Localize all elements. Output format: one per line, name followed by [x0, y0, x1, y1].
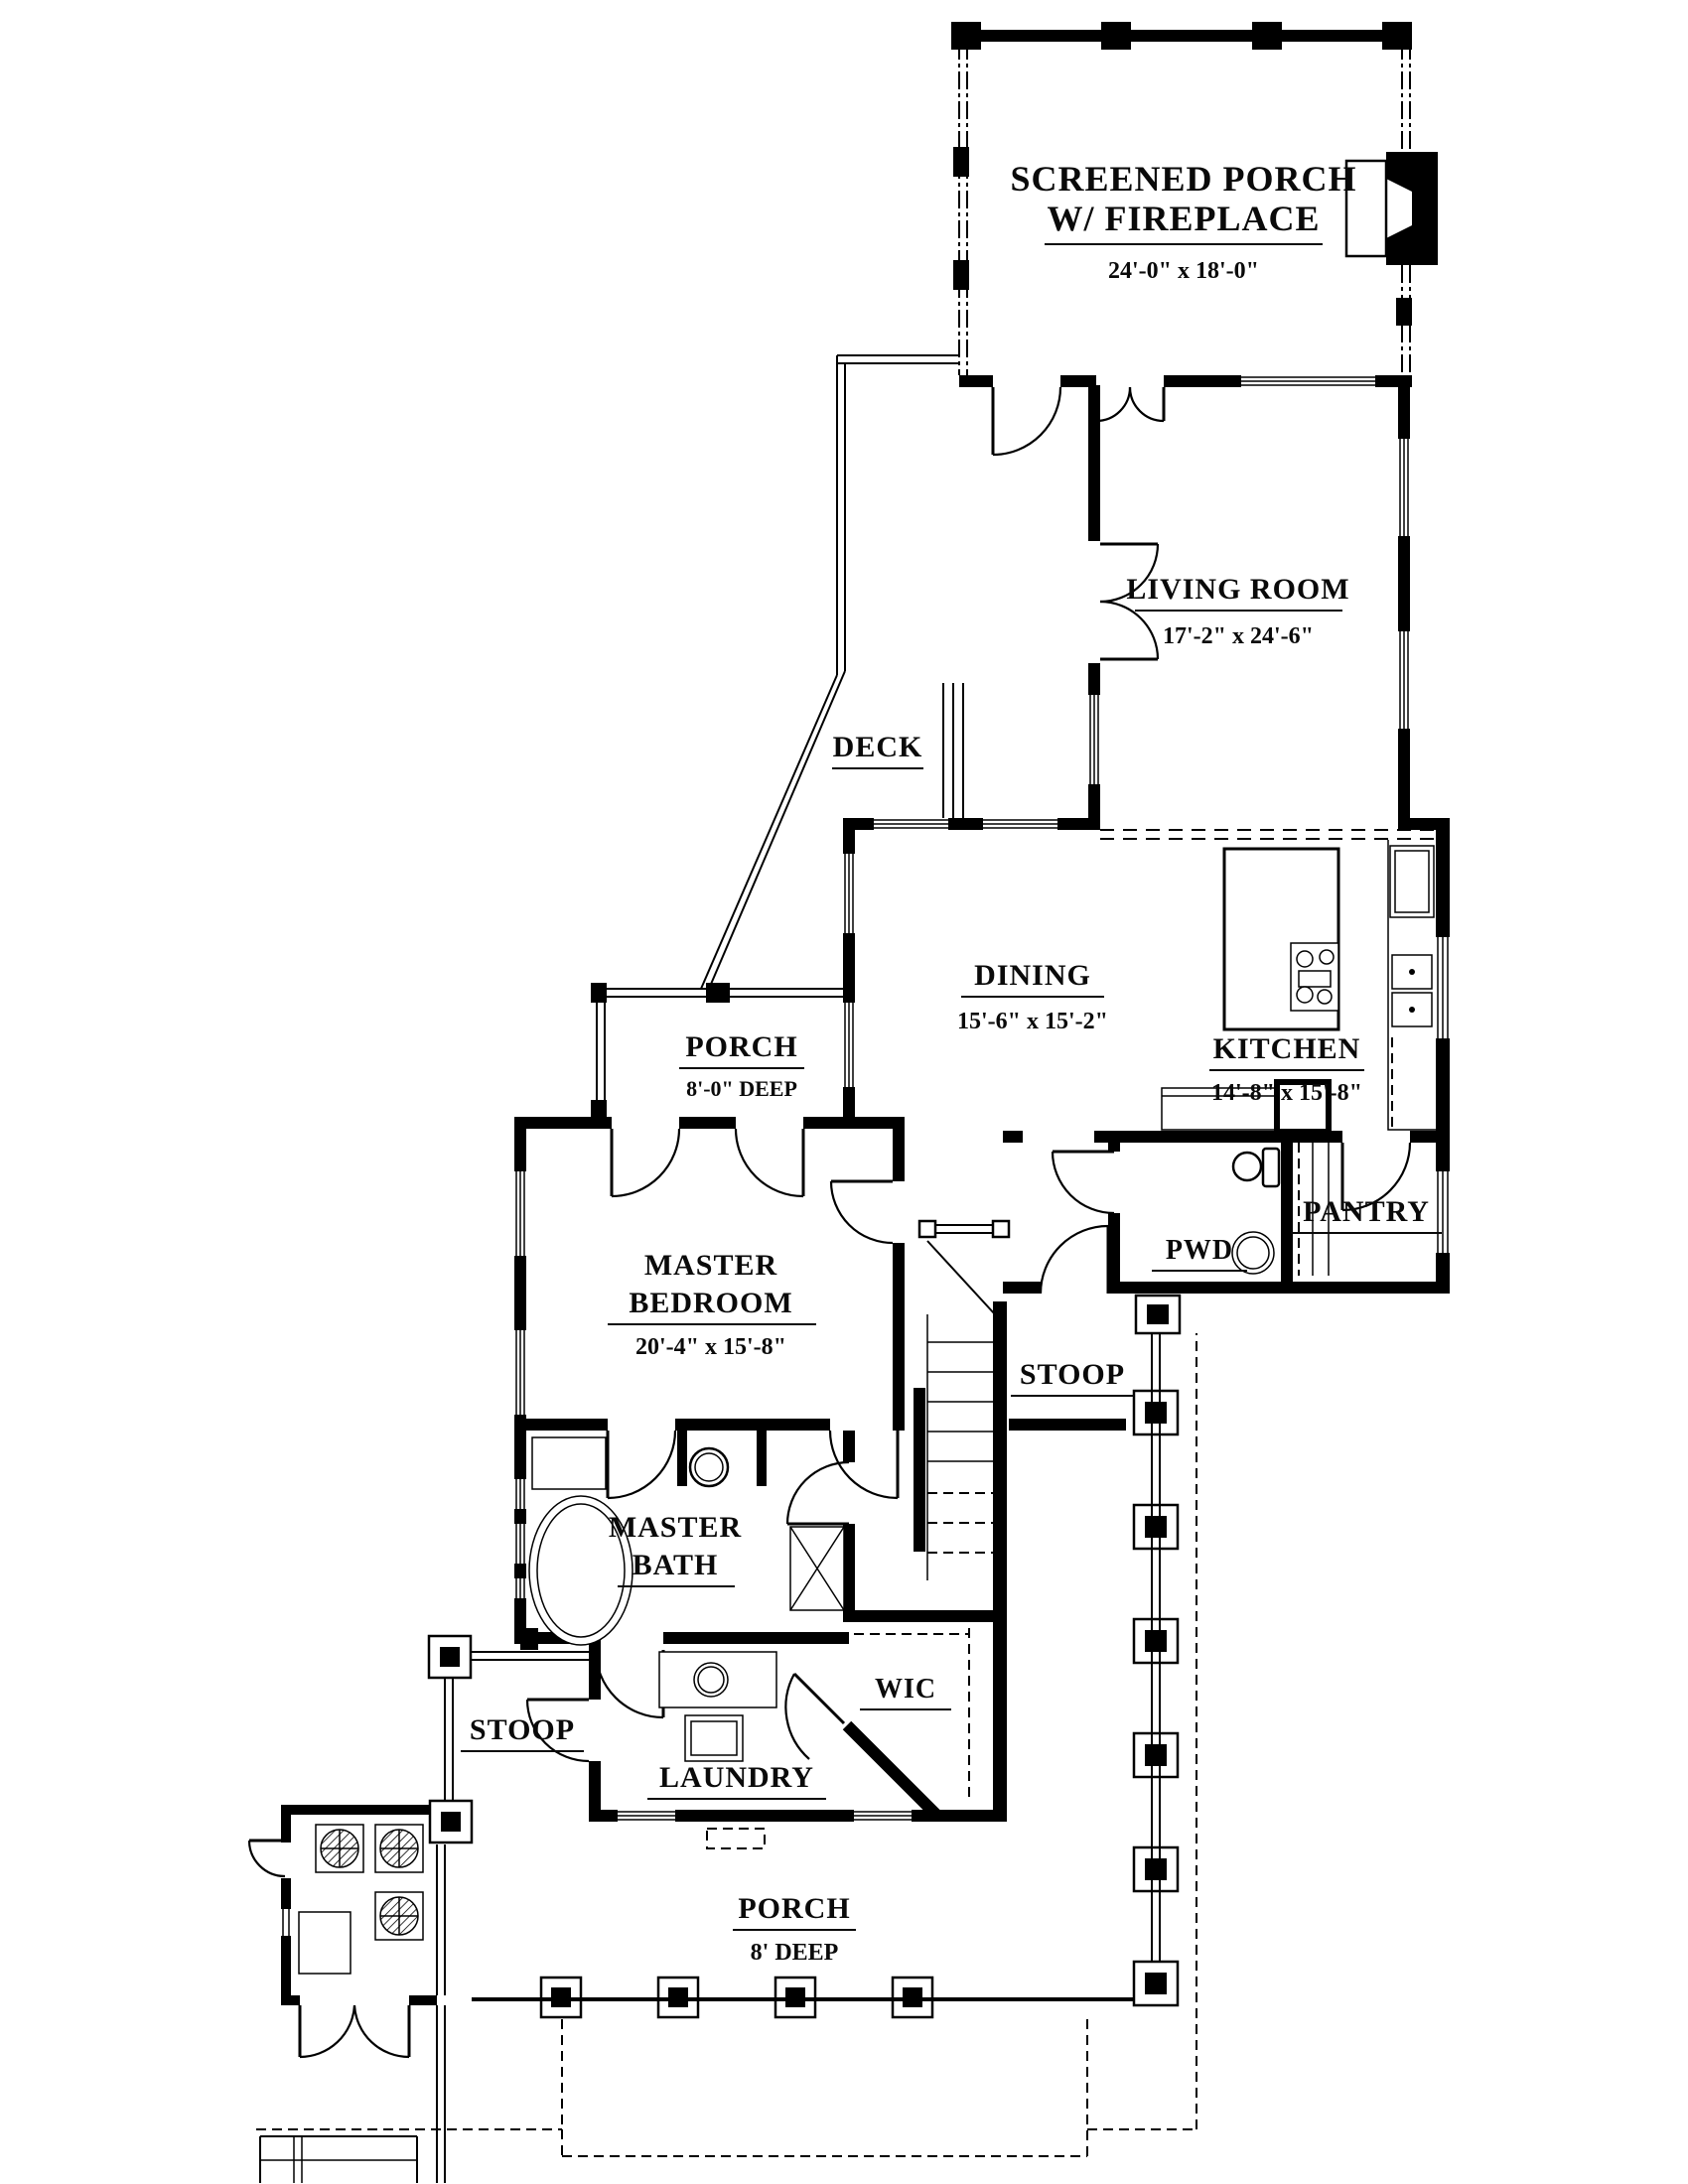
label-dining: DINING 15'-6" x 15'-2" [957, 959, 1108, 1034]
room-name: BATH [633, 1549, 719, 1581]
window-living-east-1 [1400, 439, 1408, 536]
room-name: PANTRY [1303, 1195, 1430, 1228]
door-bedroom-porch-1 [612, 1129, 679, 1196]
double-sink-icon [1392, 955, 1432, 1026]
label-laundry: LAUNDRY [647, 1761, 826, 1799]
door-screened-porch-double [1096, 387, 1164, 421]
room-name: STOOP [470, 1713, 575, 1746]
label-living-room: LIVING ROOM 17'-2" x 24'-6" [1126, 573, 1349, 649]
porch-column-icon [429, 1636, 471, 1678]
room-name: BEDROOM [629, 1287, 792, 1319]
room-name: SCREENED PORCH [1010, 159, 1356, 199]
door-bedroom-hall [831, 1181, 893, 1243]
deck-edges [701, 355, 963, 989]
kitchen-counter-east [1388, 840, 1436, 1130]
window-bedroom-west-2 [516, 1330, 524, 1415]
washer-icon [685, 1715, 743, 1761]
room-name: STOOP [1020, 1358, 1125, 1391]
porch-column-icon [430, 1801, 472, 1843]
window-dining-north-2 [983, 820, 1057, 828]
room-name: PWD [1166, 1235, 1233, 1266]
window-laundry-south-2 [854, 1812, 912, 1820]
room-dims: 15'-6" x 15'-2" [957, 1009, 1108, 1034]
door-bedroom-corridor [830, 1431, 898, 1498]
label-porch-bottom: PORCH 8' DEEP [733, 1892, 856, 1966]
vanity-icon [532, 1437, 606, 1489]
room-name: LIVING ROOM [1126, 573, 1349, 606]
entry-steps-icon [260, 2005, 445, 2183]
window-grill-west [283, 1909, 289, 1936]
porch-column-icon [1136, 1296, 1180, 1333]
door-powder [1053, 1152, 1114, 1213]
door-wic-diagonal [785, 1674, 844, 1759]
room-name: MASTER [609, 1511, 742, 1544]
porch-column-icon [1134, 1391, 1178, 1434]
porch-column-icon [1134, 1962, 1178, 2005]
door-grill-west [249, 1841, 285, 1876]
window-pantry-east [1438, 1171, 1448, 1253]
label-powder: PWD [1152, 1235, 1247, 1271]
ceiling-fan-icon-2 [375, 1825, 423, 1872]
room-dims: 8'-0" DEEP [686, 1076, 797, 1101]
room-name: KITCHEN [1213, 1032, 1361, 1065]
door-bedroom-porch-2 [736, 1129, 803, 1196]
door-screened-porch-1 [993, 387, 1060, 455]
door-bath-side [787, 1462, 849, 1524]
room-name: MASTER [644, 1249, 777, 1282]
label-stoop-right: STOOP [1011, 1358, 1134, 1396]
window-dining-north-1 [874, 820, 948, 828]
room-dims: 17'-2" x 24'-6" [1163, 623, 1314, 649]
grill-cabinet-icon [299, 1912, 351, 1974]
room-name: DECK [833, 731, 923, 763]
door-grill-french [300, 2005, 409, 2057]
wic-shelves [854, 1628, 969, 1802]
label-master-bedroom: MASTER BEDROOM 20'-4" x 15'-8" [608, 1249, 816, 1360]
cooktop-icon [1291, 943, 1338, 1011]
window-dining-west-2 [845, 1003, 853, 1087]
window-dining-west-1 [845, 854, 853, 933]
room-name: LAUNDRY [659, 1761, 814, 1794]
door-stoop-right [1041, 1226, 1108, 1294]
room-dims: 8' DEEP [751, 1940, 839, 1966]
window-living-east-2 [1400, 631, 1408, 729]
label-pantry: PANTRY [1291, 1195, 1442, 1233]
round-sink-icon [1232, 1232, 1274, 1274]
room-dims: 14'-8" x 15'-8" [1211, 1080, 1362, 1106]
window-laundry-south-1 [618, 1812, 675, 1820]
room-name: PORCH [685, 1030, 797, 1063]
door-bath-laundry [596, 1650, 663, 1717]
ceiling-fan-icon-3 [375, 1892, 423, 1940]
porch-column-icon [1134, 1619, 1178, 1663]
shower-icon [790, 1527, 844, 1610]
refrigerator-icon [1390, 846, 1434, 917]
label-porch-mid: PORCH 8'-0" DEEP [679, 1030, 804, 1101]
label-screened-porch: SCREENED PORCH W/ FIREPLACE 24'-0" x 18'… [1010, 159, 1356, 284]
floorplan-drawing: SCREENED PORCH W/ FIREPLACE 24'-0" x 18'… [0, 0, 1688, 2184]
window-kitchen-east [1438, 937, 1448, 1038]
window-living-west [1090, 695, 1098, 784]
label-deck: DECK [832, 731, 923, 768]
room-dims: 24'-0" x 18'-0" [1108, 258, 1259, 284]
room-dims: 20'-4" x 15'-8" [635, 1334, 786, 1360]
room-labels: SCREENED PORCH W/ FIREPLACE 24'-0" x 18'… [461, 159, 1442, 1966]
window-bath-west [516, 1479, 524, 1598]
room-name: WIC [875, 1674, 936, 1705]
label-stoop-left: STOOP [461, 1713, 584, 1751]
floorplan-page: SCREENED PORCH W/ FIREPLACE 24'-0" x 18'… [0, 0, 1688, 2184]
room-name: W/ FIREPLACE [1047, 199, 1320, 238]
window-screened-porch-south [1241, 377, 1375, 385]
grill-room [299, 1825, 445, 1995]
room-name: PORCH [738, 1892, 850, 1925]
laundry-sink-icon [694, 1663, 728, 1697]
porch-column-icon [1134, 1733, 1178, 1777]
label-kitchen: KITCHEN 14'-8" x 15'-8" [1209, 1032, 1364, 1106]
ceiling-fan-icon [316, 1825, 363, 1872]
window-bedroom-west-1 [516, 1171, 524, 1256]
label-wic: WIC [860, 1674, 951, 1709]
toilet-icon-bath [690, 1448, 728, 1486]
door-bedroom-bath [608, 1431, 675, 1498]
room-name: DINING [974, 959, 1091, 992]
porch-column-icon [1134, 1505, 1178, 1549]
fireplace-icon [1346, 152, 1438, 265]
porch-column-icon [1134, 1847, 1178, 1891]
toilet-icon [1233, 1149, 1279, 1186]
walls [281, 22, 1450, 2005]
